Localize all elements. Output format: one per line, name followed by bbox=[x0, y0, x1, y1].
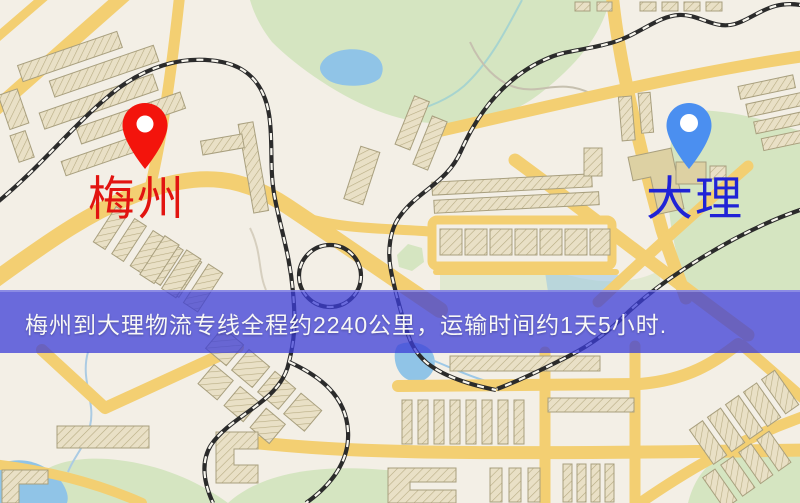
route-info-text: 梅州到大理物流专线全程约2240公里，运输时间约1天5小时. bbox=[0, 306, 667, 340]
map-canvas bbox=[0, 0, 800, 503]
destination-label: 大理 bbox=[646, 177, 744, 224]
route-info-banner: 梅州到大理物流专线全程约2240公里，运输时间约1天5小时. bbox=[0, 290, 800, 353]
destination-map-pin-icon[interactable] bbox=[666, 102, 712, 170]
route-map-image: 梅州 大理 梅州到大理物流专线全程约2240公里，运输时间约1天5小时. bbox=[0, 0, 800, 503]
origin-label: 梅州 bbox=[88, 177, 186, 224]
origin-map-pin-icon[interactable] bbox=[122, 102, 168, 170]
